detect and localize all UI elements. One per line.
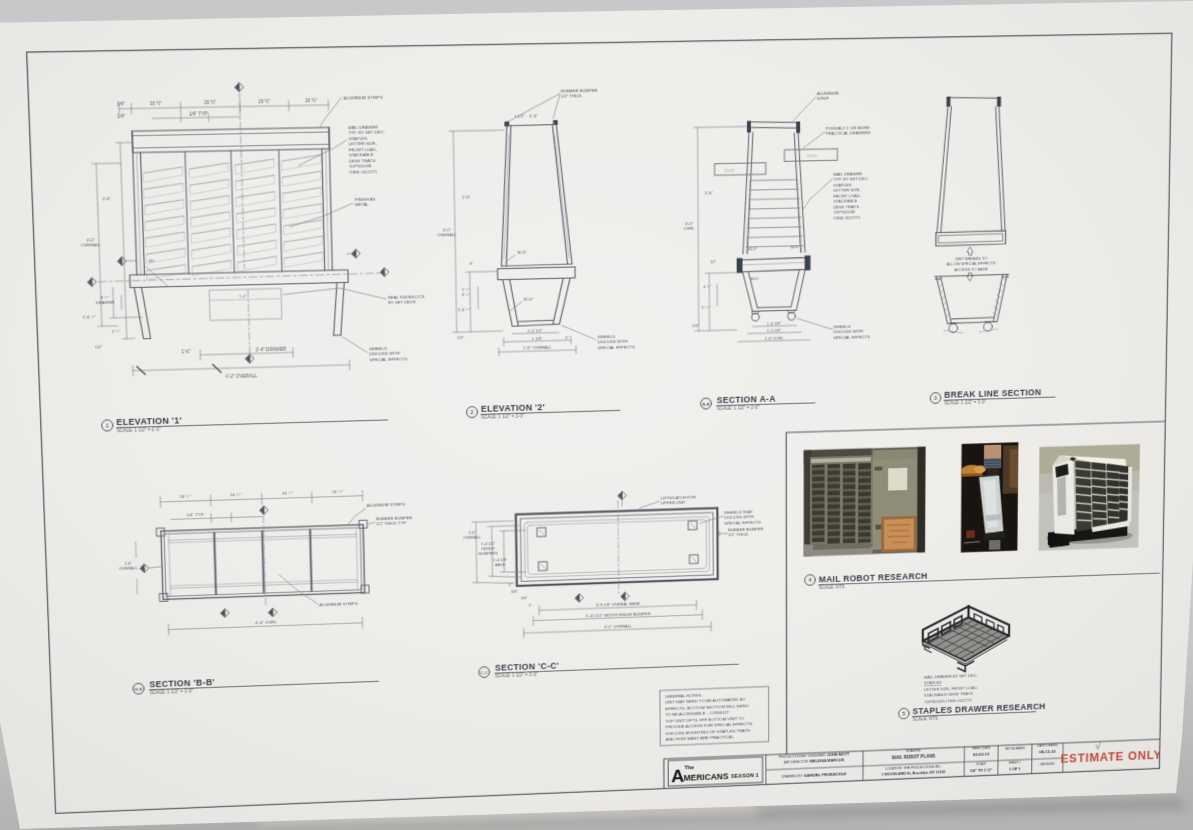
svg-text:FINISH AS: FINISH AS — [355, 197, 376, 202]
svg-text:AND HOW MANY ARE PRACTICAL.: AND HOW MANY ARE PRACTICAL. — [666, 735, 735, 742]
svg-text:4 ½": 4 ½" — [703, 284, 712, 289]
svg-text:02-03-13: 02-03-13 — [973, 752, 990, 757]
svg-text:#DP501035: #DP501035 — [349, 164, 372, 169]
svg-text:1/4" TYP: 1/4" TYP — [186, 512, 204, 517]
svg-text:3: 3 — [934, 395, 938, 402]
svg-text:EFFECTS. BOTTOM SECTION WILL: EFFECTS. BOTTOM SECTION WILL NEED — [665, 704, 749, 712]
svg-text:1'-4": 1'-4" — [239, 294, 247, 299]
svg-text:SHEET DATE: SHEET DATE — [972, 746, 991, 750]
svg-text:2013: 2013 — [724, 168, 734, 173]
svg-text:WHEELS: WHEELS — [833, 324, 850, 329]
svg-text:REAL KNOB/LOCK: REAL KNOB/LOCK — [388, 294, 425, 300]
svg-text:STAPLES: STAPLES — [924, 681, 942, 686]
svg-text:PRACTICAL DRAWERS: PRACTICAL DRAWERS — [826, 131, 871, 137]
svg-text:WHEELS: WHEELS — [369, 346, 387, 351]
svg-text:1/2": 1/2" — [95, 344, 103, 349]
svg-text:TYP. BY SET DEC:: TYP. BY SET DEC: — [348, 130, 384, 136]
svg-text:4'-0" OVRL: 4'-0" OVRL — [255, 620, 277, 625]
svg-text:5: 5 — [902, 711, 906, 718]
svg-text:30.0°: 30.0° — [517, 250, 527, 255]
svg-text:12": 12" — [710, 259, 716, 264]
svg-text:3/4": 3/4" — [117, 114, 126, 120]
svg-text:2013: 2013 — [807, 153, 817, 158]
svg-text:A: A — [671, 766, 684, 787]
svg-text:SCALE: 1 1/2" = 1'-0": SCALE: 1 1/2" = 1'-0" — [481, 414, 525, 421]
svg-text:1/4" TYP: 1/4" TYP — [189, 111, 208, 117]
svg-text:1'-0 7/8": 1'-0 7/8" — [767, 321, 781, 326]
svg-text:STACKABLE: STACKABLE — [833, 199, 857, 204]
svg-text:ITEM #612771: ITEM #612771 — [833, 215, 860, 220]
svg-text:STAPLES: STAPLES — [833, 183, 851, 188]
svg-text:SET NUMBER: SET NUMBER — [1005, 747, 1025, 751]
svg-text:3": 3" — [470, 261, 474, 266]
svg-text:3'-10 1/2" WIDTH INSIDE BUMPER: 3'-10 1/2" WIDTH INSIDE BUMPER — [586, 611, 651, 618]
svg-text:1/2": 1/2" — [692, 323, 700, 328]
svg-text:FRONT LOAD,: FRONT LOAD, — [349, 147, 378, 152]
svg-text:WHEELS: WHEELS — [598, 334, 616, 339]
svg-text:ITEM #612771: ITEM #612771 — [349, 169, 377, 174]
svg-text:BY SET DECK: BY SET DECK — [388, 300, 416, 305]
svg-text:MAIL ROBOT PLANS: MAIL ROBOT PLANS — [892, 754, 935, 761]
svg-text:45°: 45° — [149, 258, 156, 263]
svg-text:08-13-13: 08-13-13 — [1039, 749, 1056, 754]
svg-text:1/2" THICK: 1/2" THICK — [561, 94, 582, 99]
svg-text:DATE DRAWN: DATE DRAWN — [1038, 744, 1058, 748]
svg-text:OVRL: OVRL — [684, 226, 696, 231]
svg-text:The: The — [684, 765, 694, 771]
svg-text:DRAWING:: DRAWING: — [906, 749, 921, 753]
svg-text:3/4": 3/4" — [117, 102, 126, 108]
svg-text:SCALE: 1 1/2" = 1'-0": SCALE: 1 1/2" = 1'-0" — [717, 405, 760, 412]
svg-text:DRAWING BY: SAMUEL FROESCHLE: DRAWING BY: SAMUEL FROESCHLE — [782, 772, 847, 779]
svg-text:SCALE: 1 1/2" = 1'-0": SCALE: 1 1/2" = 1'-0" — [117, 427, 162, 434]
svg-text:#DP501035: #DP501035 — [833, 210, 855, 215]
svg-text:1/2" THICK TYP: 1/2" THICK TYP — [376, 521, 406, 527]
svg-text:1": 1" — [565, 335, 569, 340]
svg-text:DRAWER: DRAWER — [96, 300, 115, 305]
svg-text:OVERALL: OVERALL — [463, 535, 482, 540]
svg-text:REVISION: REVISION — [1040, 762, 1055, 766]
svg-text:4: 4 — [808, 577, 812, 584]
svg-text:16 ½": 16 ½" — [258, 98, 271, 105]
svg-text:ALUMINUM STRIPS: ALUMINUM STRIPS — [367, 502, 406, 508]
svg-text:SPECIAL EFFECTS: SPECIAL EFFECTS — [369, 357, 407, 363]
svg-text:BASE: BASE — [495, 562, 506, 567]
svg-text:16 ½": 16 ½" — [150, 100, 163, 107]
svg-text:ART DIRECTOR: MELISSA MARCUS: ART DIRECTOR: MELISSA MARCUS — [784, 758, 844, 765]
svg-text:SCALE: NTS: SCALE: NTS — [819, 585, 845, 591]
svg-text:SPECIAL EFFECTS: SPECIAL EFFECTS — [724, 520, 761, 526]
svg-text:1'-6" OVERALL: 1'-6" OVERALL — [523, 345, 552, 351]
svg-text:DESK TRAYS: DESK TRAYS — [349, 158, 376, 163]
svg-text:44.8°: 44.8° — [790, 244, 799, 249]
svg-text:2 ½": 2 ½" — [701, 305, 710, 310]
svg-text:B-B: B-B — [135, 687, 142, 692]
svg-text:1'-1 5/8": 1'-1 5/8" — [767, 328, 781, 333]
svg-text:1'-6 ½": 1'-6 ½" — [83, 314, 97, 319]
svg-text:ALUMINUM STRIPS: ALUMINUM STRIPS — [343, 95, 382, 101]
svg-text:2": 2" — [508, 582, 512, 587]
svg-text:SHEET #: SHEET # — [1009, 761, 1022, 765]
svg-text:3/4": 3/4" — [511, 589, 518, 594]
svg-text:16 ½": 16 ½" — [332, 489, 344, 495]
svg-text:5 ½": 5 ½" — [462, 292, 471, 297]
svg-text:1 1/2": 1 1/2" — [514, 114, 525, 119]
svg-text:ELEVATION '2': ELEVATION '2' — [481, 402, 545, 413]
svg-text:4'-2" OVERALL: 4'-2" OVERALL — [225, 373, 257, 380]
svg-text:MAIL DRAWER BY SET DEC:: MAIL DRAWER BY SET DEC: — [924, 673, 977, 680]
svg-text:OVERALL: OVERALL — [437, 232, 457, 237]
svg-text:GENERAL NOTES:: GENERAL NOTES: — [665, 693, 702, 699]
svg-text:C-C: C-C — [480, 670, 488, 675]
svg-text:SEASON 1: SEASON 1 — [731, 774, 759, 781]
svg-text:SCALE: 1 1/2" = 1'-0": SCALE: 1 1/2" = 1'-0" — [944, 400, 986, 407]
svg-text:1/2" THICK: 1/2" THICK — [728, 532, 748, 537]
svg-text:ALUMINUM: ALUMINUM — [817, 91, 839, 96]
svg-text:2 ½": 2 ½" — [112, 329, 121, 334]
svg-text:3/4": 3/4" — [521, 595, 528, 600]
svg-text:ACCESS TO BASE: ACCESS TO BASE — [954, 267, 988, 273]
svg-text:1'-6 ½": 1'-6 ½" — [458, 307, 471, 312]
svg-text:DESK TRAYS: DESK TRAYS — [833, 204, 859, 209]
svg-text:1/2": 1/2" — [457, 335, 465, 340]
svg-text:6"-9": 6"-9" — [529, 113, 538, 118]
svg-text:MERICANS: MERICANS — [684, 772, 729, 783]
svg-text:TYP. BY SET DEC:: TYP. BY SET DEC: — [833, 177, 868, 183]
svg-text:16 ½": 16 ½" — [204, 99, 217, 106]
svg-text:60.0°: 60.0° — [750, 276, 759, 281]
svg-text:1 1/8": 1 1/8" — [532, 336, 543, 341]
svg-text:60.0°: 60.0° — [524, 297, 534, 302]
svg-text:LETTER SIZE,: LETTER SIZE, — [349, 141, 377, 146]
svg-text:16 ½": 16 ½" — [282, 490, 294, 496]
svg-text:16 ½": 16 ½" — [230, 492, 242, 498]
svg-text:16 ½": 16 ½" — [305, 97, 317, 104]
svg-text:45.0°: 45.0° — [748, 246, 757, 251]
svg-text:SCALE: SCALE — [976, 763, 987, 767]
svg-text:ELEVATION '1': ELEVATION '1' — [116, 416, 182, 427]
svg-text:1'-6": 1'-6" — [181, 349, 191, 355]
svg-text:A-A: A-A — [702, 402, 710, 407]
svg-text:BUMPERS: BUMPERS — [478, 551, 498, 556]
svg-text:SPECIAL EFFECTS: SPECIAL EFFECTS — [833, 334, 870, 340]
svg-text:SCALE: NTS: SCALE: NTS — [912, 717, 937, 723]
svg-text:OVERALL: OVERALL — [81, 242, 102, 247]
svg-text:1'-4" DRAWER: 1'-4" DRAWER — [255, 347, 287, 354]
svg-text:1/4" TO 1'-0": 1/4" TO 1'-0" — [970, 768, 992, 773]
svg-text:1'-6" OVRL: 1'-6" OVRL — [765, 336, 785, 341]
svg-text:SECTION A-A: SECTION A-A — [717, 394, 776, 405]
svg-text:2'-8": 2'-8" — [462, 195, 471, 200]
svg-text:1 OF 1: 1 OF 1 — [1009, 766, 1021, 771]
svg-text:METAL: METAL — [355, 202, 369, 207]
svg-text:ALUMINUM STRIPS: ALUMINUM STRIPS — [319, 601, 357, 607]
svg-text:4'-2" OVERALL: 4'-2" OVERALL — [604, 624, 633, 630]
svg-text:#DP501035 ITEM #612771: #DP501035 ITEM #612771 — [924, 698, 973, 704]
svg-text:ESTIMATE ONLY: ESTIMATE ONLY — [1061, 748, 1162, 766]
svg-text:STAPLES: STAPLES — [348, 136, 367, 141]
svg-text:MAIL ROBOT RESEARCH: MAIL ROBOT RESEARCH — [819, 571, 928, 584]
svg-text:RUBBER BUMPER: RUBBER BUMPER — [561, 88, 598, 94]
svg-text:2'-8": 2'-8" — [102, 196, 111, 201]
svg-text:STRIP: STRIP — [817, 96, 829, 101]
svg-text:STACKABLE: STACKABLE — [349, 153, 374, 158]
svg-text:1": 1" — [528, 603, 532, 608]
svg-text:UPPER UNIT: UPPER UNIT — [661, 500, 686, 505]
svg-text:2'-8": 2'-8" — [705, 191, 714, 196]
svg-text:2'-2 1/2": 2'-2 1/2" — [528, 328, 544, 333]
svg-text:SPECIAL EFFECTS: SPECIAL EFFECTS — [598, 345, 635, 351]
svg-text:OVERALL: OVERALL — [119, 566, 138, 571]
svg-text:1: 1 — [106, 423, 110, 430]
svg-text:16 ½": 16 ½" — [180, 493, 192, 499]
svg-text:MAIL DRAWER: MAIL DRAWER — [348, 125, 378, 130]
svg-text:2: 2 — [470, 409, 474, 416]
